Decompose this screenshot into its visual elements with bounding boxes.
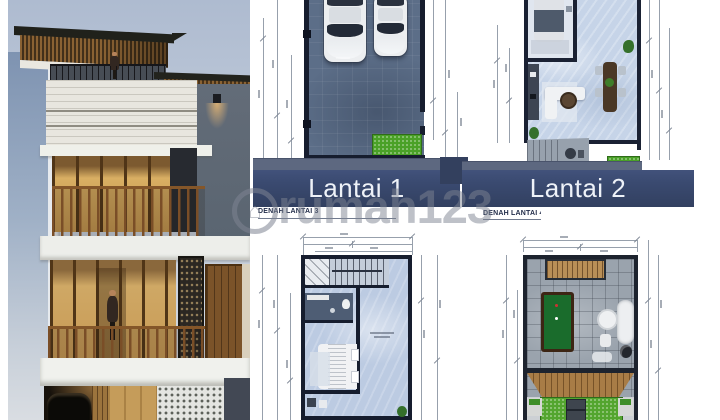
rumah123-logo-icon: ⌂: [232, 188, 278, 234]
dimension-number: [370, 247, 378, 249]
ground-floor-slab: [40, 358, 250, 386]
garage-car: [47, 393, 91, 420]
watermark-text: rumah123: [278, 182, 492, 232]
car-windshield: [377, 23, 405, 34]
dimension-number: [600, 250, 608, 252]
dark-wall-corner: [224, 378, 250, 420]
plan4-dimensions-right: [644, 240, 664, 420]
dimension-number: [513, 310, 515, 318]
billiard-ball: [555, 317, 558, 320]
car-top-view: [324, 0, 366, 62]
dimension-number: [502, 330, 504, 338]
billiard-table: [541, 292, 574, 352]
dimension-line: [523, 240, 637, 241]
wood-deck: [527, 373, 634, 397]
facade-groove: [46, 110, 197, 112]
roof-tip: [172, 33, 187, 42]
plan2-wall-right: [637, 0, 641, 150]
wall-lamp-glow: [205, 103, 229, 129]
dimension-line: [437, 255, 438, 420]
stair-direction-line: [332, 270, 382, 272]
car-rear-glass: [377, 0, 405, 6]
dining-chair: [595, 88, 603, 97]
facade-groove: [46, 125, 197, 127]
planter-box: [566, 410, 586, 420]
plan3-dimensions-left: [258, 255, 294, 420]
dimension-line: [658, 255, 659, 420]
round-chair: [597, 309, 618, 330]
dimension-number: [272, 60, 274, 68]
pillow: [351, 371, 359, 383]
dimension-line: [457, 92, 458, 158]
dimension-line: [277, 255, 278, 420]
stairs: [545, 259, 606, 280]
dimension-number: [286, 360, 288, 368]
plant: [623, 40, 634, 53]
dimension-number: [651, 70, 653, 78]
watermark-rumah123: ⌂ rumah123: [228, 180, 498, 242]
dimension-number: [493, 80, 495, 88]
bed-rug: [531, 40, 569, 54]
dimension-line: [659, 0, 660, 160]
porch-chair: [578, 150, 584, 158]
dimension-line: [648, 240, 649, 420]
bed-blanket: [534, 10, 564, 32]
table-plant: [605, 78, 614, 87]
room-label-smudge: [370, 332, 394, 334]
dimension-line: [509, 48, 510, 143]
plan3-inner-wall: [303, 390, 360, 394]
dimension-number: [545, 250, 553, 252]
dimension-number: [439, 300, 441, 308]
plan4-dimensions-left: [502, 255, 520, 420]
plant: [397, 406, 407, 417]
plan2-dimensions-right: [645, 0, 675, 165]
dimension-line: [445, 0, 446, 158]
pillow: [351, 349, 359, 361]
coffee-table: [560, 92, 577, 109]
bedroom-rug: [310, 352, 330, 386]
furniture-item: [307, 398, 316, 407]
dimension-number: [286, 100, 288, 108]
stair-landing: [305, 259, 329, 285]
dimension-number: [460, 118, 462, 126]
furniture-item: [319, 400, 327, 408]
dimension-line: [506, 255, 507, 420]
floor-text-smudge: [336, 57, 350, 59]
dimension-number: [273, 300, 275, 308]
billiard-felt: [544, 295, 571, 349]
dimension-number: [661, 110, 663, 118]
dimension-line: [497, 25, 498, 143]
dimension-line: [637, 240, 638, 252]
dimension-number: [660, 300, 662, 308]
plan2-wall-bottom: [585, 140, 639, 144]
dimension-line: [669, 28, 670, 160]
dimension-line: [523, 240, 524, 252]
dimension-number: [448, 70, 450, 78]
listing-image: Lantai 1 DENAH LANTAI 3: [0, 0, 720, 420]
breeze-block-panel: [157, 386, 224, 420]
dimension-number: [650, 340, 652, 348]
toilet: [342, 299, 350, 309]
wall-lamp: [213, 94, 221, 103]
dimension-number: [258, 90, 260, 98]
dimension-line: [421, 255, 422, 420]
potted-plant: [620, 345, 632, 358]
car-windshield: [327, 24, 362, 37]
side-table: [600, 334, 611, 347]
plan2-label: Lantai 2: [530, 173, 627, 203]
person-body: [107, 296, 119, 322]
car-rear-glass: [327, 0, 362, 6]
lounge-chaise: [617, 300, 634, 344]
dining-table: [603, 62, 617, 112]
dimension-number: [505, 64, 507, 72]
porch-table: [565, 148, 576, 159]
kitchen-sink: [530, 72, 536, 77]
planter-green: [529, 399, 540, 405]
dimension-number: [325, 247, 333, 249]
plan1-wall-right: [420, 0, 425, 112]
marble-facade: [46, 80, 197, 148]
dimension-line: [303, 244, 413, 245]
dining-chair: [618, 66, 626, 75]
planter-box: [566, 399, 586, 410]
wooden-door-panel: [205, 264, 246, 362]
bedroom-wall: [528, 58, 577, 62]
dining-chair: [618, 88, 626, 97]
kitchen-stove: [530, 94, 536, 99]
dimension-line: [262, 255, 263, 420]
dimension-line: [290, 293, 291, 420]
car-roof: [329, 7, 361, 22]
floor-mat: [592, 352, 612, 362]
balcony2-slab: [40, 236, 250, 260]
dimension-number: [423, 330, 425, 338]
plan4-inner-wall: [523, 368, 638, 373]
dimension-line: [517, 290, 518, 420]
shower-drain: [330, 308, 335, 313]
curtain: [242, 264, 250, 358]
bathroom-vanity: [307, 295, 329, 300]
car-top-view: [374, 0, 407, 56]
sofa-chaise: [545, 87, 557, 119]
dimension-line: [277, 0, 278, 158]
plan1-pillar: [303, 120, 311, 128]
bedside-table: [566, 6, 572, 12]
billiard-ball: [555, 304, 558, 307]
car-roof: [378, 8, 403, 22]
bed-ruffled-blanket: [328, 344, 346, 389]
car-hood: [376, 35, 405, 54]
dimension-line: [291, 55, 292, 158]
plan4-top-dimensions: [519, 235, 641, 253]
plant: [529, 127, 539, 139]
dimension-line: [315, 251, 412, 252]
plan3-dimensions-right: [417, 255, 443, 420]
bedroom-wall: [573, 0, 577, 62]
garage-door-column: [92, 386, 108, 420]
dimension-line: [433, 0, 434, 140]
plan1-dimensions-left: [255, 0, 300, 165]
plan1-wall-left: [304, 0, 309, 160]
plan1-pillar: [303, 30, 311, 38]
plan1-dimensions-right: [429, 0, 469, 165]
dimension-number: [560, 236, 568, 238]
dimension-line: [649, 0, 650, 160]
room-label-smudge: [374, 336, 390, 338]
dining-chair: [595, 66, 603, 75]
plan2-dimensions-left: [493, 20, 513, 145]
dimension-number: [258, 320, 260, 328]
planter-green: [620, 399, 631, 405]
house-render-photo: [8, 0, 250, 420]
